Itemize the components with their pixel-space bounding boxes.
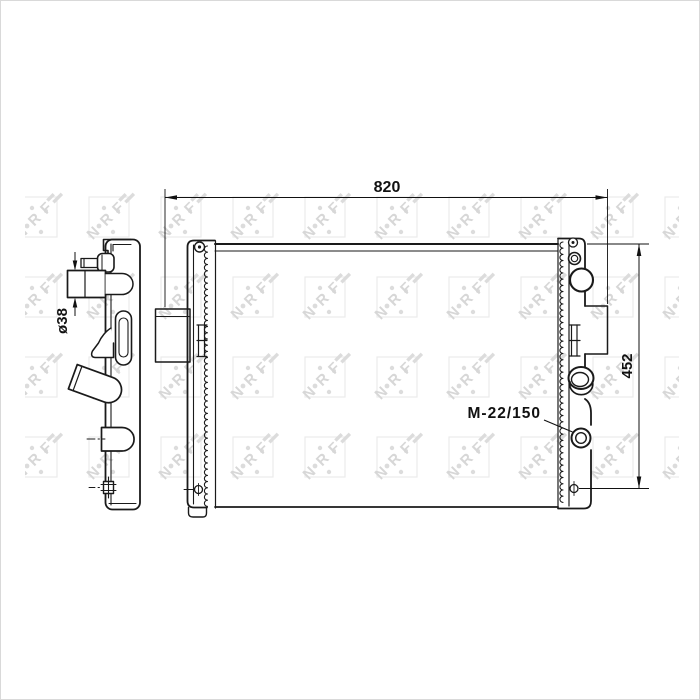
right-top-screw-center [572,241,575,244]
thread-port [572,429,591,448]
left-foot [189,508,207,518]
inlet-diameter-label: ø38 [54,308,71,334]
lower-tube [102,428,135,452]
port-thread-label: M-22/150 [468,405,541,422]
inlet-tube [68,271,106,298]
radiator-drawing-image: N R F [0,0,700,700]
small-boss [569,253,581,265]
bleed-nipple-knob [98,254,115,273]
left-top-screw-center [198,245,201,248]
inlet-tube-inner-cap [106,274,134,295]
overall-width-label: 820 [374,179,401,196]
filler-neck [570,269,593,292]
overall-height-label: 452 [619,353,636,378]
